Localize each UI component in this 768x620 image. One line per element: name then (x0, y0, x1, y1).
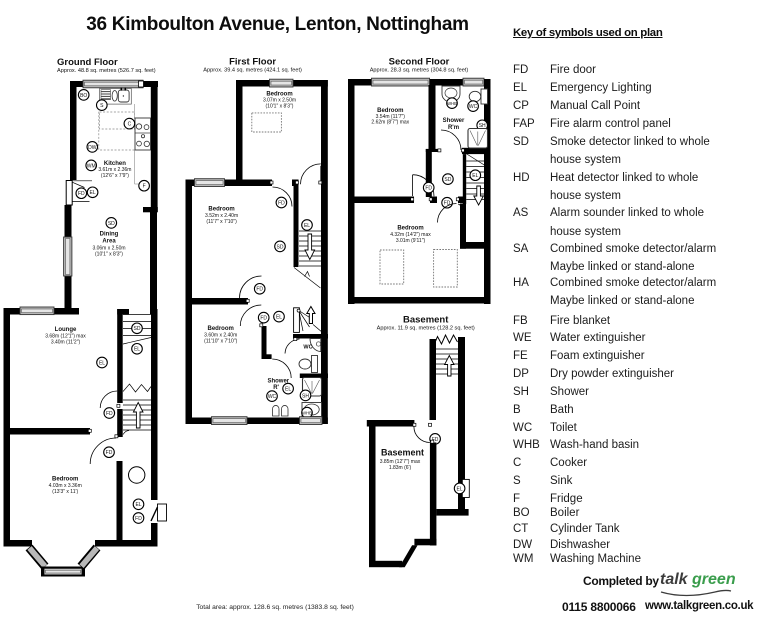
svg-text:Approx. 48.8 sq. metres (526.: Approx. 48.8 sq. metres (526.7 sq. feet) (57, 68, 156, 74)
svg-text:SD: SD (134, 326, 141, 332)
svg-text:FD: FD (256, 287, 263, 293)
svg-text:R'm: R'm (448, 125, 459, 131)
svg-text:SD: SD (108, 221, 115, 227)
svg-text:Ground Floor: Ground Floor (57, 57, 118, 68)
svg-text:Basement: Basement (403, 315, 449, 326)
svg-text:FD: FD (106, 411, 113, 417)
svg-text:(12'6" x 7'9"): (12'6" x 7'9") (101, 173, 129, 179)
svg-text:Approx. 39.4 sq. metres (424.: Approx. 39.4 sq. metres (424.1 sq. feet) (203, 68, 302, 74)
svg-text:Basement: Basement (381, 448, 424, 458)
svg-text:WC: WC (469, 104, 478, 110)
svg-text:FD: FD (135, 516, 142, 522)
svg-text:F: F (143, 184, 146, 190)
svg-text:WC: WC (268, 394, 277, 400)
svg-text:WC: WC (303, 345, 312, 351)
svg-text:Bedroom: Bedroom (397, 226, 423, 232)
svg-text:3.60m x 2.40m: 3.60m x 2.40m (204, 332, 237, 338)
svg-text:EL: EL (134, 347, 140, 353)
svg-text:EL: EL (135, 502, 141, 508)
svg-text:EL: EL (285, 387, 291, 393)
svg-text:Lounge: Lounge (55, 327, 77, 333)
svg-text:(13'3" x 11'): (13'3" x 11') (52, 489, 78, 495)
svg-text:SH: SH (302, 393, 309, 399)
svg-text:(10'1" x 8'3"): (10'1" x 8'3") (95, 252, 123, 258)
svg-text:DW: DW (88, 145, 97, 151)
svg-text:3.40m (11'2"): 3.40m (11'2") (51, 340, 81, 346)
svg-text:EL: EL (457, 486, 463, 492)
svg-text:2.62m (8'7") max: 2.62m (8'7") max (371, 120, 409, 126)
svg-text:EL: EL (276, 315, 282, 321)
svg-text:Approx. 11.9 sq. metres (128.: Approx. 11.9 sq. metres (128.2 sq. feet) (377, 326, 475, 332)
svg-text:EL: EL (90, 190, 96, 196)
svg-text:(10'1" x 8'3"): (10'1" x 8'3") (266, 103, 294, 109)
svg-text:R': R' (273, 385, 279, 391)
svg-text:FD: FD (78, 191, 85, 197)
svg-text:Second Floor: Second Floor (389, 57, 450, 68)
svg-text:Bedroom: Bedroom (208, 207, 234, 213)
svg-text:First Floor: First Floor (229, 57, 276, 68)
svg-text:FD: FD (278, 200, 285, 206)
svg-text:Shower: Shower (443, 118, 465, 124)
svg-text:WHB: WHB (447, 101, 457, 106)
svg-text:(11'7" x 7'10"): (11'7" x 7'10") (206, 219, 237, 225)
svg-text:EL: EL (304, 223, 310, 229)
svg-text:Shower: Shower (267, 378, 289, 384)
svg-text:Dining: Dining (100, 232, 119, 238)
svg-text:BO: BO (80, 93, 87, 99)
svg-text:EL: EL (99, 360, 105, 366)
svg-text:Bedroom: Bedroom (52, 477, 78, 483)
svg-text:FD: FD (260, 316, 267, 322)
svg-text:SD: SD (444, 177, 451, 183)
svg-text:EL: EL (472, 173, 478, 179)
svg-text:(11'10" x 7'10"): (11'10" x 7'10") (204, 339, 237, 345)
svg-text:FD: FD (425, 186, 432, 192)
svg-text:WM: WM (87, 163, 96, 169)
svg-text:Bedroom: Bedroom (208, 326, 234, 332)
svg-text:FD: FD (106, 450, 113, 456)
svg-text:1.83m (6'): 1.83m (6') (389, 465, 412, 471)
svg-text:3.01m (9'11"): 3.01m (9'11") (396, 238, 426, 244)
svg-text:Area: Area (102, 239, 116, 245)
svg-text:C: C (128, 122, 132, 128)
svg-text:WHB: WHB (302, 411, 312, 416)
svg-text:SD: SD (277, 244, 284, 250)
svg-text:Approx. 28.3 sq. metres (304.: Approx. 28.3 sq. metres (304.8 sq. feet) (370, 68, 469, 74)
